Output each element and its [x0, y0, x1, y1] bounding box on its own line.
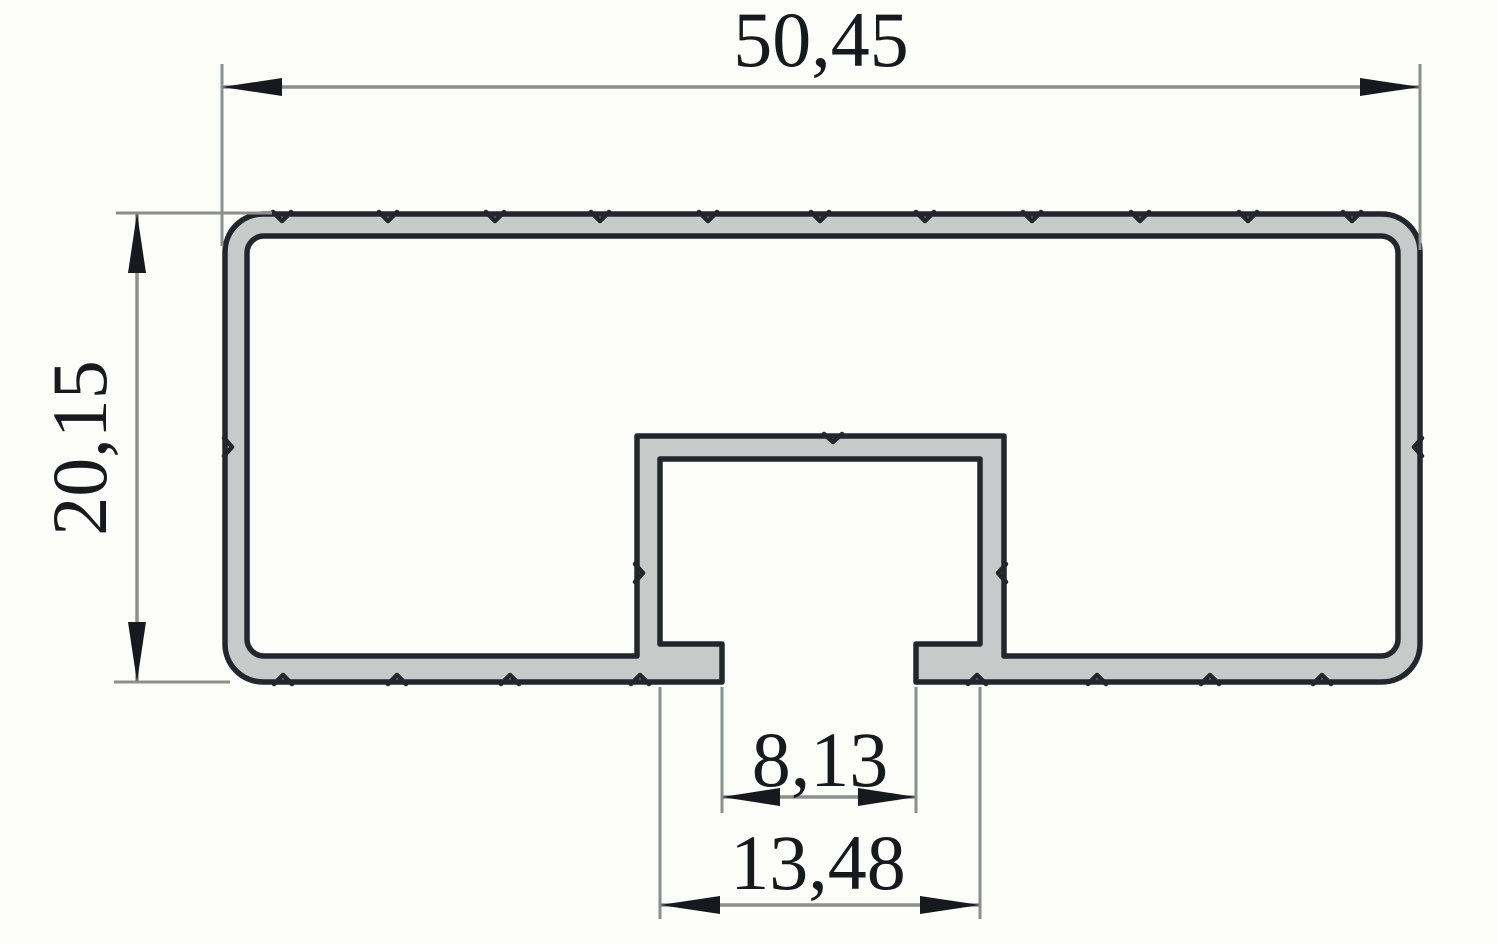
arrowhead	[660, 896, 720, 914]
arrowhead	[128, 622, 146, 682]
arrowhead	[920, 896, 980, 914]
drawing-canvas: 50,45 20,15 8,13 13,48	[0, 0, 1498, 944]
slot-inner-width-label: 13,48	[730, 819, 906, 906]
overall-height-label: 20,15	[36, 360, 123, 536]
arrowhead	[1360, 78, 1420, 96]
arrowhead	[222, 78, 282, 96]
cross-section-drawing: 50,45 20,15 8,13 13,48	[0, 0, 1498, 944]
arrowhead	[128, 213, 146, 273]
profile	[225, 214, 1420, 682]
slot-opening-label: 8,13	[752, 716, 889, 803]
profile-body	[225, 214, 1420, 682]
overall-width-label: 50,45	[733, 0, 909, 83]
